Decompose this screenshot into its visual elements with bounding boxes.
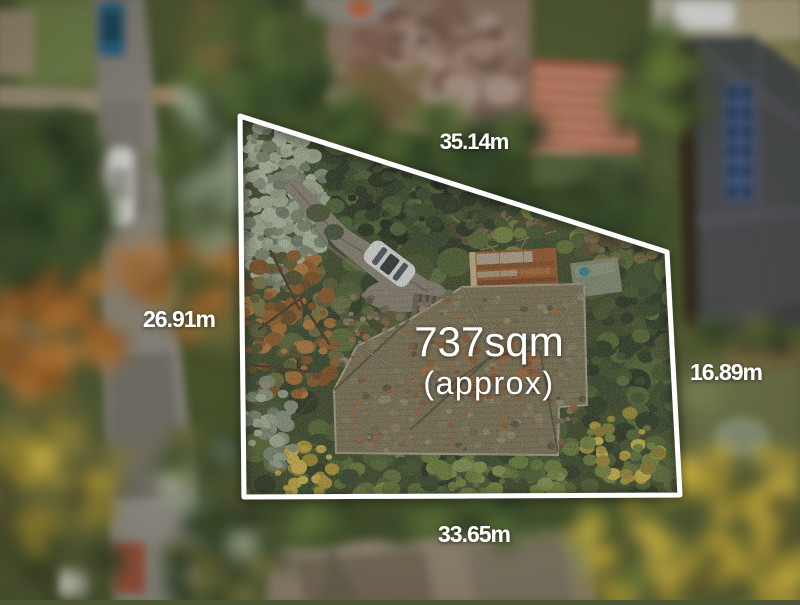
svg-text:33.65m: 33.65m xyxy=(438,521,511,547)
svg-text:16.89m: 16.89m xyxy=(690,359,763,385)
svg-text:(approx): (approx) xyxy=(423,365,554,401)
svg-text:35.14m: 35.14m xyxy=(440,129,509,154)
svg-text:737sqm: 737sqm xyxy=(414,318,563,365)
svg-text:26.91m: 26.91m xyxy=(143,306,216,332)
